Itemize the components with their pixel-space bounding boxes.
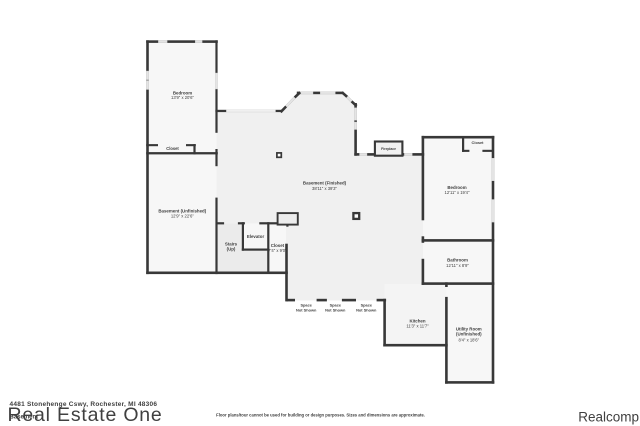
- svg-text:38'11" x 39'3": 38'11" x 39'3": [312, 186, 337, 191]
- svg-text:4481 Stonehenge Cswy, Rocheste: 4481 Stonehenge Cswy, Rochester, MI 4830…: [10, 401, 158, 408]
- svg-text:(Up): (Up): [227, 246, 236, 251]
- svg-text:12'11" x 19'4": 12'11" x 19'4": [445, 190, 470, 195]
- svg-text:12'9" x 22'6": 12'9" x 22'6": [171, 213, 194, 218]
- svg-text:Basement (Finished): Basement (Finished): [303, 181, 347, 186]
- svg-text:Elevator: Elevator: [247, 234, 265, 239]
- svg-text:13'9" x 20'6": 13'9" x 20'6": [171, 95, 194, 100]
- svg-text:8'4" x 18'6": 8'4" x 18'6": [458, 338, 479, 343]
- svg-text:Not Shown: Not Shown: [356, 308, 377, 313]
- svg-text:Fireplace: Fireplace: [381, 147, 396, 151]
- svg-text:Closet: Closet: [166, 146, 179, 151]
- svg-text:Floor plans/tour cannot be use: Floor plans/tour cannot be used for buil…: [216, 412, 425, 417]
- svg-text:7'4" x 9'0": 7'4" x 9'0": [268, 248, 287, 253]
- svg-text:Basement: Basement: [10, 414, 39, 420]
- svg-text:Not Shown: Not Shown: [296, 308, 317, 313]
- svg-text:Closet: Closet: [472, 140, 485, 145]
- svg-text:Not Shown: Not Shown: [325, 308, 346, 313]
- svg-text:(Unfinished): (Unfinished): [456, 332, 482, 337]
- svg-text:12'11" x 8'9": 12'11" x 8'9": [446, 263, 469, 268]
- svg-text:Realcomp: Realcomp: [578, 409, 639, 424]
- svg-text:11'3" x 11'7": 11'3" x 11'7": [406, 323, 429, 328]
